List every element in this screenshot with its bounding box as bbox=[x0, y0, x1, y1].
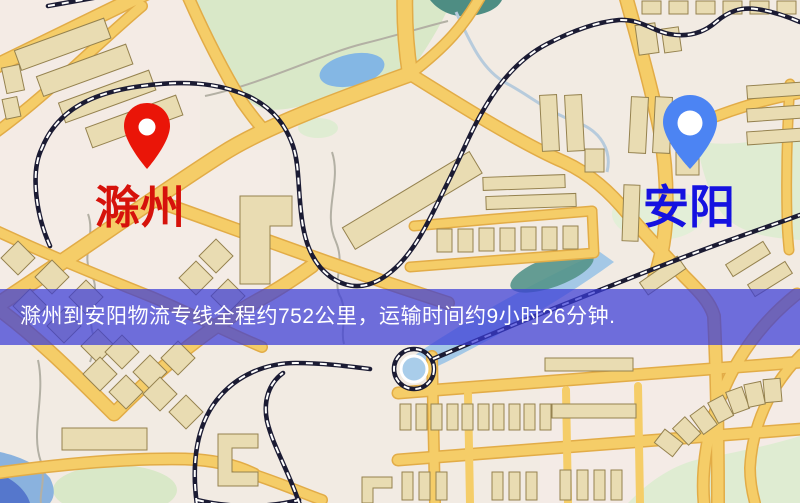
destination-label: 安阳 bbox=[643, 182, 735, 233]
origin-label: 滁州 bbox=[95, 183, 185, 233]
map-image: 滁州 安阳 bbox=[0, 0, 800, 503]
route-info-text: 滁州到安阳物流专线全程约752公里，运输时间约9小时26分钟. bbox=[20, 305, 615, 328]
pond bbox=[401, 356, 427, 382]
origin-pin-hole bbox=[139, 119, 156, 136]
destination-pin-hole bbox=[678, 111, 703, 136]
route-info-banner: 滁州到安阳物流专线全程约752公里，运输时间约9小时26分钟. bbox=[0, 289, 800, 345]
map-screenshot: 滁州 安阳 滁州到安阳物流专线全程约752公里，运输时间约9小时26分钟. bbox=[0, 0, 800, 503]
